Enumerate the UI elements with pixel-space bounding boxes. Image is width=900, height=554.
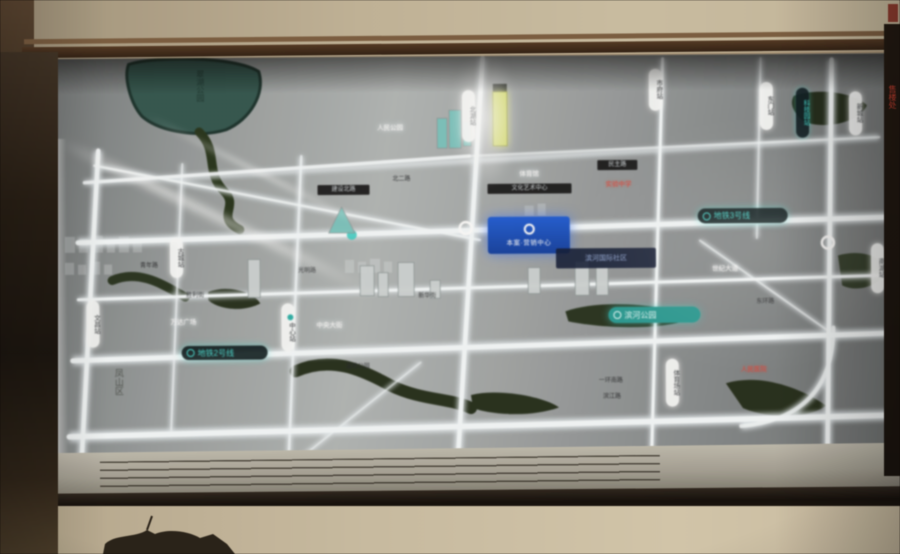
- red-vertical-sign: 售楼处: [884, 62, 898, 132]
- metro-station-pill: 文昌站: [86, 301, 99, 348]
- road-name-plate: 建设北路: [317, 185, 369, 195]
- vent-grille-lines: [100, 455, 660, 488]
- map-board: 文昌站 古城站 中心站 北湖站 市府站 东门站 科技园站 南湖站 体育场站 新城…: [54, 53, 900, 467]
- metro-line-label: 地铁2号线: [198, 347, 235, 358]
- glow-label: 中央大街: [316, 319, 342, 329]
- station-label: 中心站: [287, 322, 294, 342]
- metro-line-badge: 地铁2号线: [182, 345, 268, 360]
- project-sign-label: 本案·营销中心: [506, 236, 551, 246]
- red-sign-chip: [888, 4, 898, 22]
- station-dot-icon: [287, 314, 293, 320]
- frame-shadow: [54, 53, 899, 95]
- metro-station-pill: 古城站: [170, 238, 183, 278]
- left-frame-shadow: [0, 52, 58, 554]
- glow-label: 体育馆: [519, 168, 539, 178]
- photo-of-map-display: 文昌站 古城站 中心站 北湖站 市府站 东门站 科技园站 南湖站 体育场站 新城…: [0, 0, 900, 554]
- station-label: 古城站: [176, 248, 183, 268]
- road-name: 青年路: [140, 260, 158, 269]
- wetland-shape: [296, 363, 471, 409]
- road-name: 滨江路: [603, 391, 621, 400]
- foreground-object: [95, 514, 255, 554]
- district-label: 凤山区: [113, 368, 126, 438]
- antenna-detail: [147, 516, 152, 530]
- glow-label: 人民公园: [377, 122, 403, 132]
- metro-logo-icon: [187, 349, 195, 357]
- park-name: 湿地公园: [346, 361, 370, 370]
- road-name: 新华街: [418, 290, 436, 299]
- board-sheen: [574, 113, 900, 376]
- project-logo-icon: [523, 224, 534, 235]
- road-name: 北二路: [392, 173, 410, 182]
- glow-label: 万达广场: [170, 316, 196, 326]
- road-name: 一环南路: [599, 375, 623, 384]
- metro-station-pill: 中心站: [281, 303, 294, 351]
- station-label: 文昌站: [92, 314, 99, 334]
- station-label: 东门站: [766, 96, 773, 116]
- road-name: 胜利街: [186, 290, 204, 299]
